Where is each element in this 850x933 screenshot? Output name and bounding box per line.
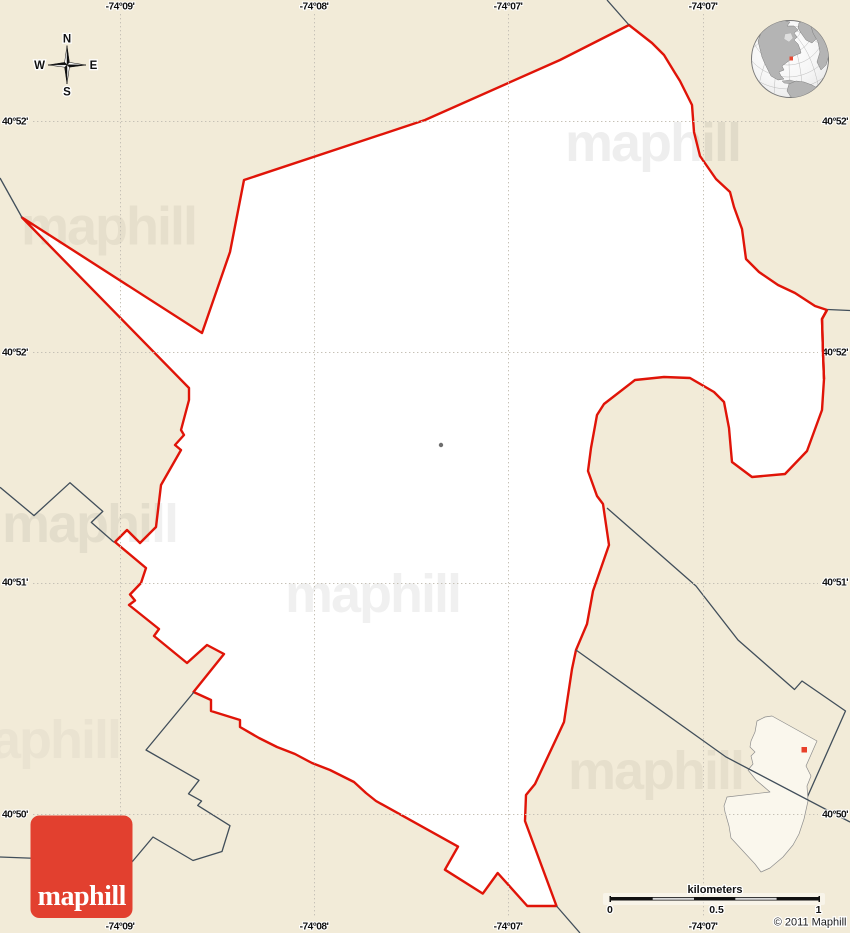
svg-text:-74°09': -74°09' <box>106 922 135 933</box>
svg-text:-74°09': -74°09' <box>106 2 135 13</box>
svg-text:S: S <box>63 87 71 99</box>
svg-text:-74°08': -74°08' <box>300 2 329 13</box>
svg-text:40°50': 40°50' <box>2 810 28 821</box>
svg-text:40°50': 40°50' <box>822 810 848 821</box>
svg-text:40°52': 40°52' <box>822 117 848 128</box>
svg-text:maphill: maphill <box>285 564 460 624</box>
svg-text:kilometers: kilometers <box>687 884 742 896</box>
svg-text:0.5: 0.5 <box>709 904 724 916</box>
svg-text:40°51': 40°51' <box>2 578 28 589</box>
svg-text:40°51': 40°51' <box>822 578 848 589</box>
svg-text:maphill: maphill <box>0 710 120 770</box>
svg-text:-74°07': -74°07' <box>494 2 523 13</box>
svg-text:0: 0 <box>607 904 613 916</box>
svg-text:40°52': 40°52' <box>822 348 848 359</box>
svg-text:-74°07': -74°07' <box>494 922 523 933</box>
svg-text:-74°07': -74°07' <box>689 922 718 933</box>
svg-text:maphill: maphill <box>21 197 196 257</box>
svg-text:-74°08': -74°08' <box>300 922 329 933</box>
svg-text:N: N <box>63 34 71 46</box>
svg-text:maphill: maphill <box>38 881 127 912</box>
svg-text:-74°07': -74°07' <box>689 2 718 13</box>
svg-text:© 2011 Maphill: © 2011 Maphill <box>774 917 847 929</box>
svg-text:40°52': 40°52' <box>2 117 28 128</box>
svg-text:40°52': 40°52' <box>2 348 28 359</box>
svg-text:maphill: maphill <box>2 494 177 554</box>
svg-text:E: E <box>90 60 98 72</box>
svg-text:1: 1 <box>816 904 822 916</box>
svg-text:W: W <box>34 60 45 72</box>
